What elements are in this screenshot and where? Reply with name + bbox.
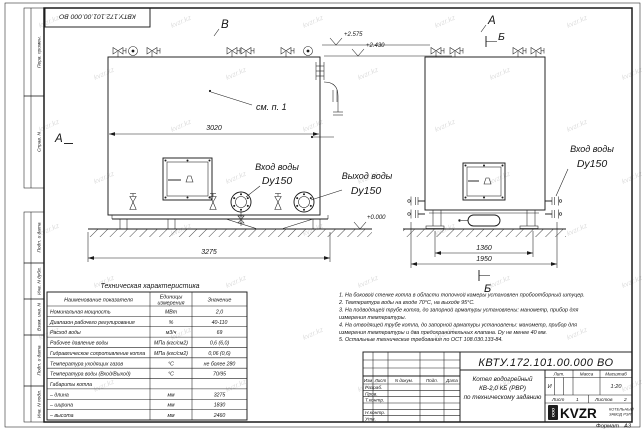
drawing-canvas: kvzr.kzkvzr.kzkvzr.kzkvzr.kzkvzr.kzkvzr.… [0, 0, 644, 430]
frame-field-label: Перв. примен. [36, 36, 42, 68]
title-doc-number: КВТУ.172.101.00.000 ВО [478, 357, 613, 369]
logo-kvzr-text: KVZR [560, 406, 597, 421]
section-marker-b-top: Б [498, 31, 505, 43]
frame-field-label: Справ. N [36, 131, 42, 152]
front-view: 3020 3275 А В см. п. 1 Вход воды Dy150 В… [54, 19, 452, 262]
watermark-text: kvzr.kz [566, 14, 589, 29]
table-cell-name: Температура уходящих газов [50, 361, 123, 367]
title-block: ИзмЛистN докум.Подп.Дата Разраб.Пров.Т.к… [363, 352, 634, 430]
frame-field-label: Подп. и дата [36, 345, 42, 375]
title-block-col-header: Лист [374, 378, 387, 383]
tech-col-value: Значение [208, 298, 232, 304]
watermark-text: kvzr.kz [302, 118, 325, 133]
frame-field-label: Инв. N подл. [36, 390, 42, 418]
table-cell-units: м3/ч [166, 330, 177, 336]
table-cell-units: % [169, 320, 174, 326]
side-inlet-label: Вход воды [570, 144, 614, 154]
scale-value: 1:20 [611, 384, 623, 390]
table-cell-name: Расход воды [50, 330, 81, 336]
table-cell-value: 1830 [214, 403, 226, 409]
elevation-marks: +2.575 +2.430 +0.000 [322, 32, 452, 229]
watermark-text: kvzr.kz [93, 378, 116, 393]
title-block-col-header: Подп. [426, 378, 438, 383]
front-supports [112, 215, 328, 229]
watermark-text: kvzr.kz [357, 274, 380, 289]
note-line: измерения температуры. [339, 315, 406, 321]
dim-1950-text: 1950 [476, 256, 492, 263]
section-marker-v-top: В [221, 19, 229, 31]
sheets-value: 2 [623, 397, 627, 403]
drawing-sheet: kvzr.kzkvzr.kzkvzr.kzkvzr.kzkvzr.kzkvzr.… [0, 0, 644, 430]
tech-table: Техническая характеристика Наименование … [47, 283, 247, 420]
table-cell-value: 70/95 [213, 372, 226, 378]
company-logo: ООО KVZR КОТЕЛЬНЫЙ ЗАВОД РЭП [548, 405, 634, 421]
table-cell-units: мм [167, 413, 175, 419]
watermark-text: kvzr.kz [566, 222, 589, 237]
table-cell-units: мм [167, 392, 175, 398]
title-block-sign-rows: Разраб.Пров.Т.контр.Н.контр.Утв. [365, 385, 385, 423]
table-cell-name: Рабочее давление воды [50, 341, 108, 347]
watermark-text: kvzr.kz [170, 14, 193, 29]
section-marker-a-left: А [54, 133, 63, 145]
side-supports [426, 210, 539, 229]
watermark-text: kvzr.kz [225, 66, 248, 81]
top-doc-number: КВТУ.172.101.00.000 ВО [58, 12, 135, 19]
table-cell-name: Диапазон рабочего регулирования [49, 320, 135, 326]
product-line-3: по техническому заданию [464, 393, 542, 401]
note-line: 3. На подводящей трубе котла, до запорно… [339, 306, 579, 313]
watermark-text: kvzr.kz [225, 274, 248, 289]
side-inlet-dn: Dy150 [577, 158, 608, 170]
title-block-sign-label: Пров. [365, 391, 378, 397]
front-door [163, 158, 212, 200]
watermark-text: kvzr.kz [302, 326, 325, 341]
table-cell-units: МПа (кгс/см2) [154, 351, 188, 357]
watermark-text: kvzr.kz [225, 170, 248, 185]
table-cell-units: °С [168, 372, 174, 378]
level-top-text: +2.575 [344, 32, 363, 38]
level-zero-text: +0.000 [367, 215, 386, 221]
logo-caption-2: ЗАВОД РЭП [609, 412, 632, 417]
watermark-text: kvzr.kz [302, 14, 325, 29]
note-line: 1. На боковой стенке котла в области топ… [339, 292, 585, 299]
table-cell-value: 40-110 [212, 320, 228, 326]
note-line: 4. На отводящей трубе котла, до запорной… [339, 321, 577, 328]
frame-field-label: Взам. инв. N [36, 303, 42, 331]
table-cell-value: 0,06 (0,6) [208, 351, 230, 357]
table-cell-name: Габариты котла [50, 382, 92, 388]
product-line-2: КВ-2,0 КБ (РВР) [479, 385, 526, 392]
sheet-label: Лист [551, 397, 564, 403]
table-cell-value: 69 [217, 330, 223, 336]
dim-3020-text: 3020 [206, 125, 222, 132]
tech-col-units-2: измерения [158, 301, 185, 307]
tech-table-rows: Номинальная мощностьМВт2,0Диапазон рабоч… [47, 306, 247, 419]
product-line-1: Котел водогрейный [473, 375, 533, 383]
title-block-col-header: N докум. [395, 378, 413, 383]
sheets-label: Листов [594, 397, 613, 403]
dim-3275-text: 3275 [201, 249, 217, 256]
front-inlet-dn: Dy150 [262, 175, 293, 187]
table-cell-units: МВт [165, 309, 178, 315]
title-block-col-header: Изм [364, 378, 372, 383]
frame-field-label: Инв. N дубл. [36, 267, 42, 295]
watermark-text: kvzr.kz [38, 118, 61, 133]
watermark-text: kvzr.kz [93, 170, 116, 185]
watermark-text: kvzr.kz [93, 66, 116, 81]
format-value: А3 [623, 424, 632, 430]
frame-stamp-fields: Перв. примен.Справ. NПодп. и датаИнв. N … [24, 8, 44, 422]
table-cell-name: Номинальная мощность [50, 309, 111, 315]
title-block-sign-label: Т.контр. [365, 398, 384, 404]
watermark-text: kvzr.kz [434, 118, 457, 133]
dim-1360-text: 1360 [476, 245, 492, 252]
table-cell-name: – высота [49, 413, 74, 419]
title-block-sign-label: Утв. [365, 417, 376, 423]
see-note-label: см. п. 1 [256, 102, 287, 112]
table-cell-name: – длина [49, 392, 69, 398]
scale-label: Масштаб [605, 372, 627, 377]
watermark-text: kvzr.kz [489, 170, 512, 185]
section-marker-a-top: А [487, 15, 496, 27]
table-cell-value: 2,0 [215, 309, 223, 315]
table-cell-value: 2460 [213, 413, 226, 419]
table-cell-value: 0,6 (6,0) [210, 341, 230, 347]
sheet-value: 1 [576, 397, 579, 403]
table-cell-units: °С [168, 361, 174, 367]
front-outlet-label: Выход воды [342, 171, 393, 181]
title-block-sign-label: Разраб. [365, 385, 382, 391]
note-line: 2. Температура воды на входе 70°С, на вы… [338, 300, 475, 306]
title-block-sign-label: Н.контр. [365, 410, 385, 416]
watermark-text: kvzr.kz [357, 66, 380, 81]
dim-3020: 3020 [109, 125, 319, 134]
table-cell-name: Гидравлическое сопротивление котла [50, 351, 145, 357]
watermark-text: kvzr.kz [566, 326, 589, 341]
lit-value: И [548, 384, 552, 390]
logo-ooo-text: ООО [551, 408, 556, 417]
notes: 1. На боковой стенке котла в области топ… [338, 292, 585, 344]
watermark-text: kvzr.kz [38, 14, 61, 29]
lit-label: Лит. [553, 372, 565, 377]
watermark-text: kvzr.kz [566, 118, 589, 133]
table-cell-units: мм [167, 403, 175, 409]
level-mid-text: +2.430 [366, 43, 385, 49]
table-cell-name: – ширина [49, 403, 73, 409]
side-view: 1360 1950 А Б Б Вход воды Dy150 [403, 15, 614, 295]
top-doc-number-stamp: КВТУ.172.101.00.000 ВО [45, 8, 150, 27]
table-cell-value: 3275 [214, 392, 226, 398]
frame-field-label: Подп. и дата [36, 222, 42, 252]
front-inlet-label: Вход воды [255, 162, 299, 172]
watermark-text: kvzr.kz [489, 66, 512, 81]
mass-label: Масса [580, 372, 594, 377]
table-cell-units: МПа (кгс/см2) [154, 341, 188, 347]
title-block-col-header: Дата [445, 378, 458, 383]
watermark-text: kvzr.kz [170, 118, 193, 133]
table-cell-value: не более 280 [204, 361, 236, 367]
watermark-text: kvzr.kz [225, 378, 248, 393]
note-line: 5. Остальные технические требования по О… [339, 337, 503, 343]
note-line: измерения температуры и два предохраните… [339, 330, 547, 336]
tech-col-name: Наименование показателя [64, 298, 133, 304]
watermark-text: kvzr.kz [489, 274, 512, 289]
watermark-text: kvzr.kz [434, 14, 457, 29]
tech-table-title: Техническая характеристика [100, 283, 199, 290]
front-outlet-dn: Dy150 [351, 185, 382, 197]
table-cell-name: Температура воды (Вход/Выход) [50, 372, 131, 378]
format-label: Формат [596, 424, 619, 430]
